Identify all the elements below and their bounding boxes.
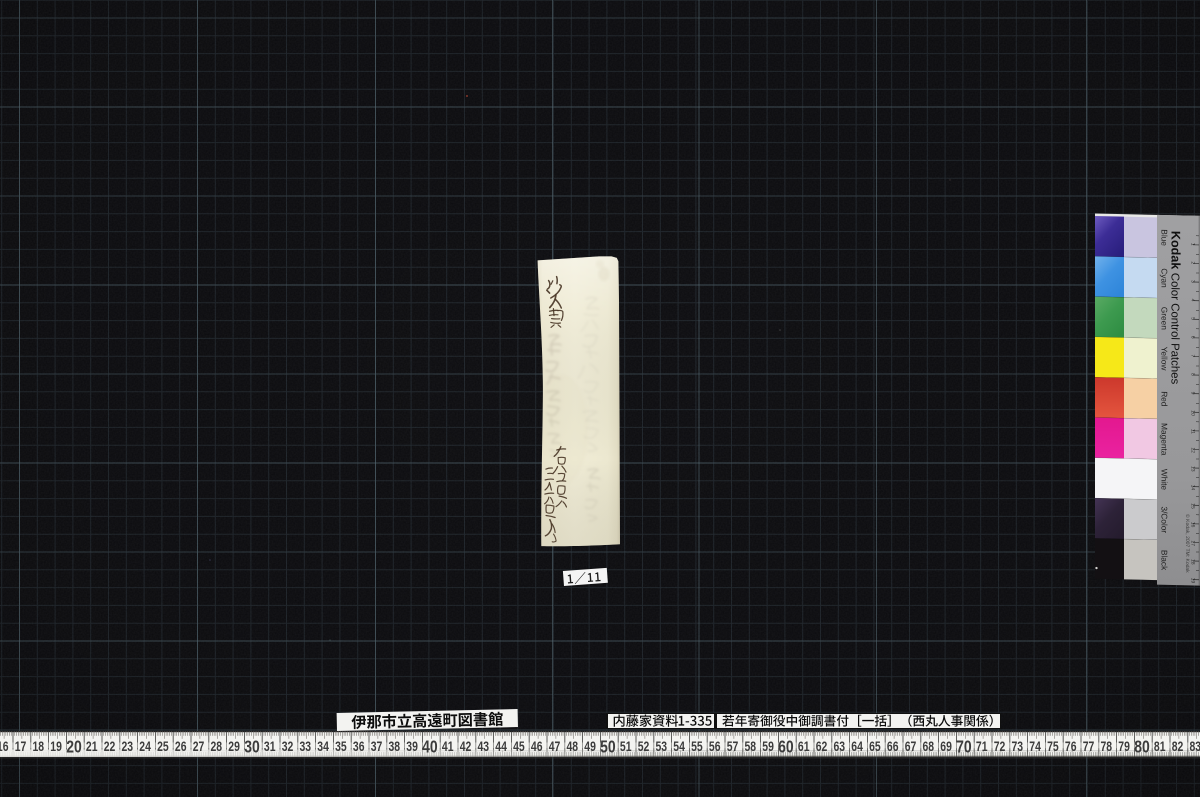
svg-text:73: 73 <box>1012 739 1024 754</box>
svg-text:35: 35 <box>335 739 347 754</box>
svg-text:83: 83 <box>1190 739 1200 754</box>
svg-text:74: 74 <box>1029 739 1041 754</box>
svg-text:71: 71 <box>976 739 988 754</box>
svg-text:42: 42 <box>460 739 472 754</box>
svg-text:27: 27 <box>193 739 205 754</box>
svg-text:45: 45 <box>513 739 525 754</box>
svg-text:37: 37 <box>371 739 383 754</box>
svg-text:39: 39 <box>406 739 418 754</box>
svg-text:61: 61 <box>798 739 810 754</box>
svg-text:36: 36 <box>353 739 365 754</box>
svg-text:41: 41 <box>442 739 454 754</box>
svg-text:30: 30 <box>244 737 260 757</box>
svg-text:19: 19 <box>50 739 62 754</box>
svg-text:17: 17 <box>15 739 27 754</box>
svg-text:70: 70 <box>956 737 972 757</box>
svg-text:65: 65 <box>869 739 881 754</box>
svg-text:33: 33 <box>300 739 312 754</box>
svg-text:72: 72 <box>994 739 1006 754</box>
svg-text:34: 34 <box>317 739 329 754</box>
svg-text:69: 69 <box>940 739 952 754</box>
svg-text:52: 52 <box>638 739 650 754</box>
svg-text:53: 53 <box>656 739 668 754</box>
svg-text:77: 77 <box>1083 739 1095 754</box>
svg-text:75: 75 <box>1047 739 1059 754</box>
svg-text:18: 18 <box>33 739 45 754</box>
svg-text:28: 28 <box>211 739 223 754</box>
svg-text:23: 23 <box>122 739 134 754</box>
svg-text:54: 54 <box>673 739 685 754</box>
svg-text:22: 22 <box>104 739 116 754</box>
svg-text:63: 63 <box>834 739 846 754</box>
svg-text:80: 80 <box>1134 737 1150 757</box>
svg-text:40: 40 <box>422 737 438 757</box>
svg-text:79: 79 <box>1118 739 1130 754</box>
svg-text:76: 76 <box>1065 739 1077 754</box>
svg-text:16: 16 <box>0 739 9 754</box>
svg-text:51: 51 <box>620 739 632 754</box>
svg-text:46: 46 <box>531 739 543 754</box>
svg-text:78: 78 <box>1101 739 1113 754</box>
svg-text:31: 31 <box>264 739 276 754</box>
svg-text:49: 49 <box>584 739 596 754</box>
svg-text:64: 64 <box>851 739 863 754</box>
svg-text:48: 48 <box>567 739 579 754</box>
svg-text:66: 66 <box>887 739 899 754</box>
svg-text:82: 82 <box>1172 739 1184 754</box>
svg-text:81: 81 <box>1154 739 1166 754</box>
svg-text:29: 29 <box>228 739 240 754</box>
svg-text:25: 25 <box>157 739 169 754</box>
svg-text:21: 21 <box>86 739 98 754</box>
svg-text:67: 67 <box>905 739 917 754</box>
svg-text:50: 50 <box>600 737 616 757</box>
svg-text:57: 57 <box>727 739 739 754</box>
svg-text:55: 55 <box>691 739 703 754</box>
svg-text:47: 47 <box>549 739 561 754</box>
svg-text:43: 43 <box>478 739 490 754</box>
svg-text:68: 68 <box>923 739 935 754</box>
svg-text:20: 20 <box>66 737 82 757</box>
svg-text:26: 26 <box>175 739 187 754</box>
svg-text:44: 44 <box>495 739 507 754</box>
svg-text:59: 59 <box>762 739 774 754</box>
svg-text:56: 56 <box>709 739 721 754</box>
svg-text:58: 58 <box>745 739 757 754</box>
svg-text:62: 62 <box>816 739 828 754</box>
svg-text:60: 60 <box>778 737 794 757</box>
svg-text:24: 24 <box>139 739 151 754</box>
svg-text:32: 32 <box>282 739 294 754</box>
svg-text:38: 38 <box>389 739 401 754</box>
